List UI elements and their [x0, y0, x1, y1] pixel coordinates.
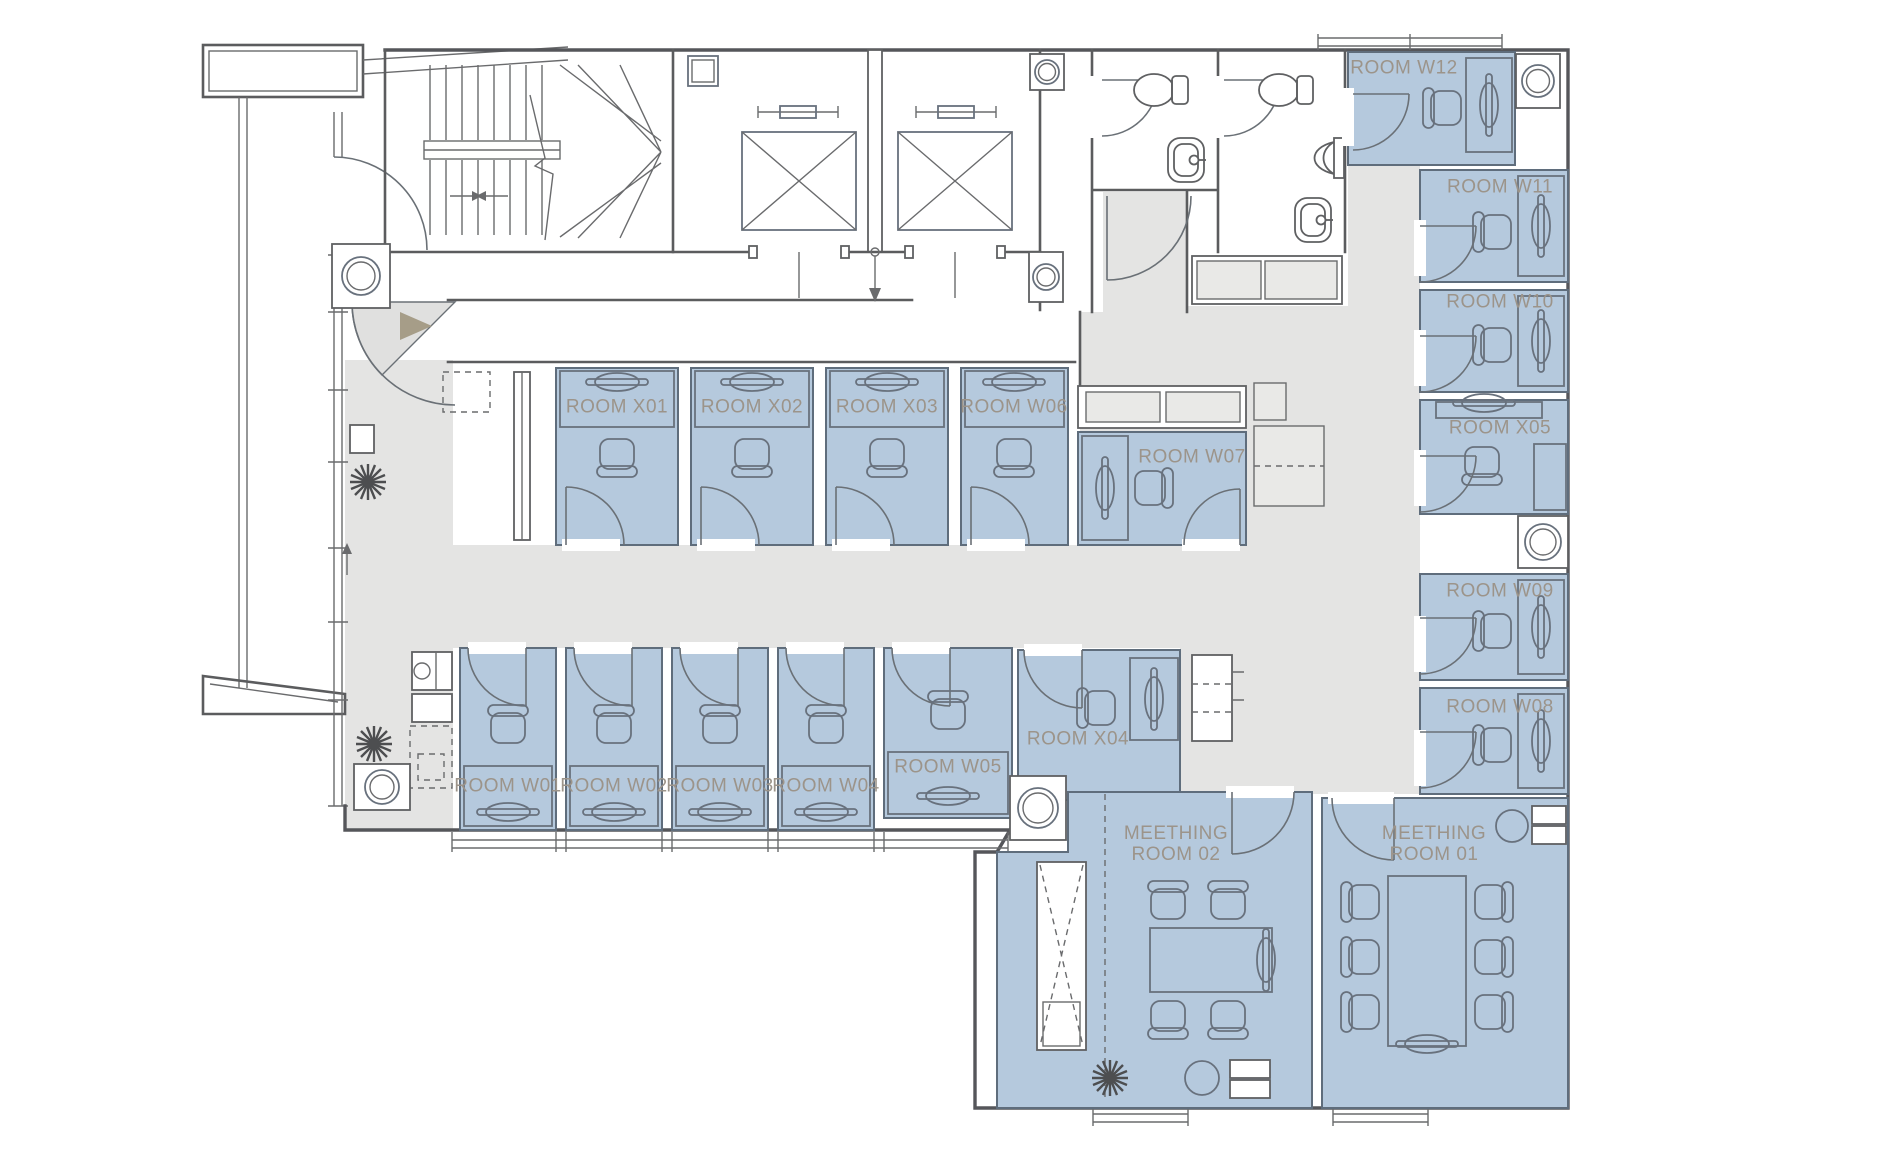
column-icon: [1030, 54, 1064, 90]
elevator-bank: [673, 50, 1040, 302]
column-icon: [1516, 54, 1560, 108]
room-x01: [556, 368, 678, 551]
room-w09: [1414, 574, 1568, 680]
room-x05: [1414, 394, 1568, 514]
room-w10: [1414, 290, 1568, 392]
toilet-icon: [1134, 74, 1188, 106]
column-icon: [354, 764, 410, 810]
stairwell: [424, 65, 661, 240]
toilet-icon: [1259, 74, 1313, 106]
room-w02: [566, 642, 662, 830]
room-w11: [1414, 170, 1568, 282]
column-icon: [1029, 252, 1063, 302]
plant-icon: [356, 726, 392, 762]
room-w05: [884, 642, 1012, 818]
entry-door-arc: [334, 157, 427, 250]
sink-icon: [1295, 198, 1333, 242]
entry-closet: [443, 372, 530, 540]
shelf: [350, 425, 374, 453]
room-w04: [778, 642, 874, 830]
room-w06: [961, 368, 1068, 551]
elevator-left-icon: [742, 106, 856, 230]
floor-plan-drawing: [0, 0, 1890, 1167]
elevator-right-icon: [898, 106, 1012, 230]
meeting-room-01: [1322, 792, 1568, 1108]
room-x02: [691, 368, 813, 551]
plant-icon: [1092, 1060, 1128, 1096]
floor-plan-canvas: ROOM X01 ROOM X02 ROOM X03 ROOM W06 ROOM…: [0, 0, 1890, 1167]
column-icon: [1010, 776, 1066, 840]
room-w03: [672, 642, 768, 830]
plant-icon: [350, 464, 386, 500]
column-icon: [1518, 516, 1568, 568]
room-w01: [460, 642, 556, 830]
room-w12: [1342, 52, 1515, 165]
column-icon: [332, 244, 390, 308]
room-x03: [826, 368, 948, 551]
sink-icon: [1168, 138, 1206, 182]
room-w08: [1414, 688, 1568, 794]
room-w07: [1078, 386, 1246, 551]
